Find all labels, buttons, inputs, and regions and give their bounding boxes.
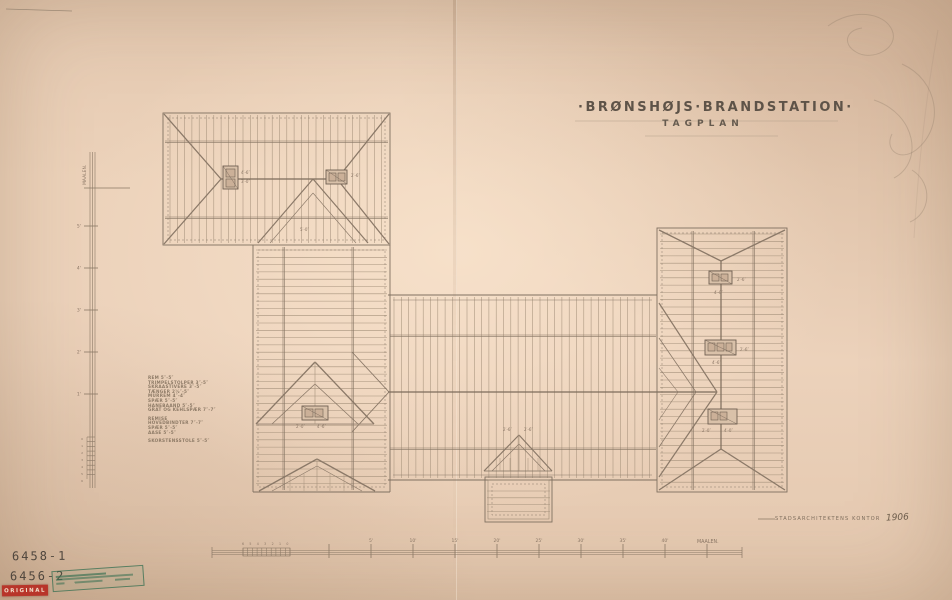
scale-label: 2′-6″ [351, 173, 360, 178]
porch [485, 477, 552, 522]
signature-year: 1906 [886, 512, 909, 523]
scale-label: 1 [81, 444, 83, 448]
scale-label: 35' [620, 538, 627, 544]
scale-label: 4' [77, 266, 81, 272]
scale-label: MAALEN. [697, 539, 719, 545]
scale-label: 5′-0″ [300, 227, 309, 232]
drawing-title: ·BRØNSHØJS·BRANDSTATION· [578, 100, 828, 115]
scale-label: 1 [279, 542, 281, 546]
scale-label: 1' [77, 392, 81, 398]
scale-label: 40' [662, 538, 669, 544]
scale-label: 6 [242, 542, 244, 546]
scale-label: 5 [249, 542, 251, 546]
scale-label: 2 [81, 451, 83, 455]
scale-label: 5 [81, 472, 83, 476]
scale-label: 25' [536, 538, 543, 544]
scale-label: MAALEN. [82, 165, 88, 185]
scale-label: 3' [77, 308, 81, 314]
scale-label: 0 [81, 437, 83, 441]
drawing-subtitle: TAGPLAN [578, 119, 828, 129]
spec-line: SKORSTENSSTOLE 5″-5″ [148, 439, 216, 444]
scale-label: 0 [286, 542, 288, 546]
dimension-annotations: 4′-6″3′-0″2′-6″5′-0″2′-0″4′-6″2′-6″4′-0″… [241, 170, 749, 433]
bottom-scale-bar: 65432105'10'15'20'25'30'35'40'MAALEN. [212, 519, 775, 558]
scanned-drawing-page: { "title": { "line1": "·BRØNSHØJS·BRANDS… [0, 0, 952, 600]
scale-label: 2' [77, 350, 81, 356]
scale-label: 2 [272, 542, 274, 546]
wing-d-hips [659, 230, 785, 490]
scale-label: 5' [369, 538, 373, 544]
scale-label: 4 [81, 465, 83, 469]
scale-label: 2′-0″ [702, 428, 711, 433]
spec-line: GRAT OG KEHLSPÆR 7″-7″ [148, 408, 216, 413]
scale-label: 4 [257, 542, 259, 546]
scale-label: 4′-6″ [317, 424, 326, 429]
scale-label: 15' [452, 538, 459, 544]
scale-label: 30' [578, 538, 585, 544]
scale-label: 10' [410, 538, 417, 544]
scale-label: 3 [81, 458, 83, 462]
scale-label: 5' [77, 224, 81, 230]
office-signature: STADSARCHITEKTENS KONTOR 1906 [775, 513, 909, 523]
scale-label: 4′-0″ [724, 428, 733, 433]
scale-label: 3 [264, 542, 266, 546]
wing-a-hips [164, 114, 389, 244]
scale-label: 4′-0″ [714, 290, 723, 295]
scale-label: 2′-0″ [296, 424, 305, 429]
scale-label: 20' [494, 538, 501, 544]
original-stamp: ORIGINAL [2, 585, 48, 597]
scale-label: 2′-6″ [503, 427, 512, 432]
archive-number-1: 6458-1 [12, 549, 67, 563]
scale-label: 4′-6″ [712, 360, 721, 365]
scale-label: 3′-0″ [241, 179, 250, 184]
office-name: STADSARCHITEKTENS KONTOR [775, 516, 881, 522]
scale-label: 2′-6″ [740, 347, 749, 352]
scale-label: 4′-6″ [241, 170, 250, 175]
timber-spec-list: REM 5″-5″TRIMPELSTOLPER 3″-5″SKRAASTIVER… [148, 376, 216, 444]
left-scale-ruler: 5'4'3'2'1'MAALEN.0123456 [77, 152, 130, 488]
scale-label: 2′-6″ [737, 277, 746, 282]
wing-b-gable [259, 459, 375, 491]
scale-label: 2′-6″ [524, 427, 533, 432]
scale-label: 6 [81, 479, 83, 483]
drawing-title-block: ·BRØNSHØJS·BRANDSTATION· TAGPLAN [578, 100, 828, 129]
roof-plan-drawing: 4′-6″3′-0″2′-6″5′-0″2′-0″4′-6″2′-6″4′-0″… [0, 0, 952, 600]
